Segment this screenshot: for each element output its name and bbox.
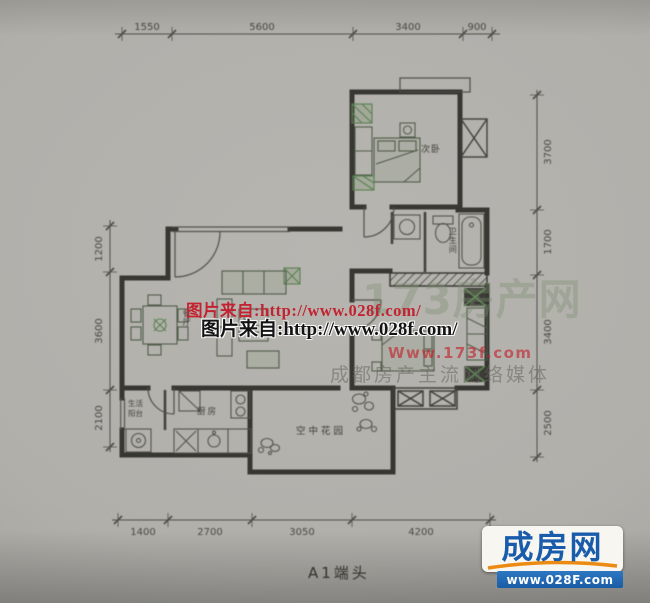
bay-window [393, 388, 457, 409]
hatched-wall [390, 273, 487, 286]
room-label-secondary-bedroom: 次卧 [421, 145, 441, 155]
walls-thin [165, 212, 425, 430]
wall-partitions [165, 212, 425, 430]
dim-left-2: 3600 [94, 318, 105, 343]
dim-left-3: 2100 [94, 405, 105, 430]
master-door [352, 300, 381, 330]
floorplan-photo: 1550 5600 3400 900 1400 2700 3050 4200 1… [0, 0, 650, 603]
room-label-balcony-line2: 阳台 [128, 410, 143, 419]
site-logo: 成房网 [482, 526, 623, 572]
site-logo-name: 成房网 [501, 531, 603, 563]
shaft-bedroom [461, 119, 487, 157]
dim-bottom-2: 2700 [197, 527, 222, 538]
master-bedroom-furniture [372, 308, 487, 371]
dim-top-1: 1550 [134, 22, 159, 33]
dim-right-1: 3700 [543, 139, 554, 164]
room-label-balcony-line1: 生活 [128, 400, 143, 409]
plant-boxes [284, 104, 374, 284]
duct-master-top [464, 288, 486, 306]
sofa-group [217, 271, 286, 368]
room-label-kitchen: 厨房 [197, 408, 218, 418]
kitchen-fixtures [174, 391, 251, 453]
dim-bottom-3: 3050 [289, 527, 314, 538]
room-label-sky-garden: 空中花园 [296, 427, 346, 438]
dim-top-3: 3400 [395, 22, 420, 33]
dim-right-4: 2500 [543, 410, 554, 435]
secondary-bedroom-furniture [355, 123, 420, 182]
washer [126, 429, 151, 452]
duct-master-bottom [465, 366, 485, 382]
dim-bottom-1: 1400 [130, 527, 155, 538]
bedroom-door [364, 207, 394, 237]
room-label-bathroom: 卫生间 [448, 227, 457, 254]
entry-door [175, 232, 220, 277]
dim-left-1: 1200 [94, 236, 105, 261]
windows [121, 227, 290, 430]
window-lines [121, 227, 290, 430]
kitchen-door [148, 388, 174, 414]
dim-bottom-4: 4200 [408, 527, 433, 538]
plan-title: A1端头 [308, 565, 370, 582]
bathroom-fixtures [394, 214, 484, 268]
dim-top-4: 900 [467, 22, 486, 33]
floorplan-svg: 1550 5600 3400 900 1400 2700 3050 4200 1… [0, 0, 650, 603]
garden-rocks [259, 392, 377, 455]
site-logo-url: www.028F.com [497, 571, 623, 588]
dining-set [131, 295, 188, 355]
room-label-dining: 餐厅 [182, 309, 191, 327]
dim-right-2: 1700 [543, 229, 554, 254]
dim-right-3: 3400 [543, 319, 554, 344]
dim-top-2: 5600 [249, 22, 274, 33]
